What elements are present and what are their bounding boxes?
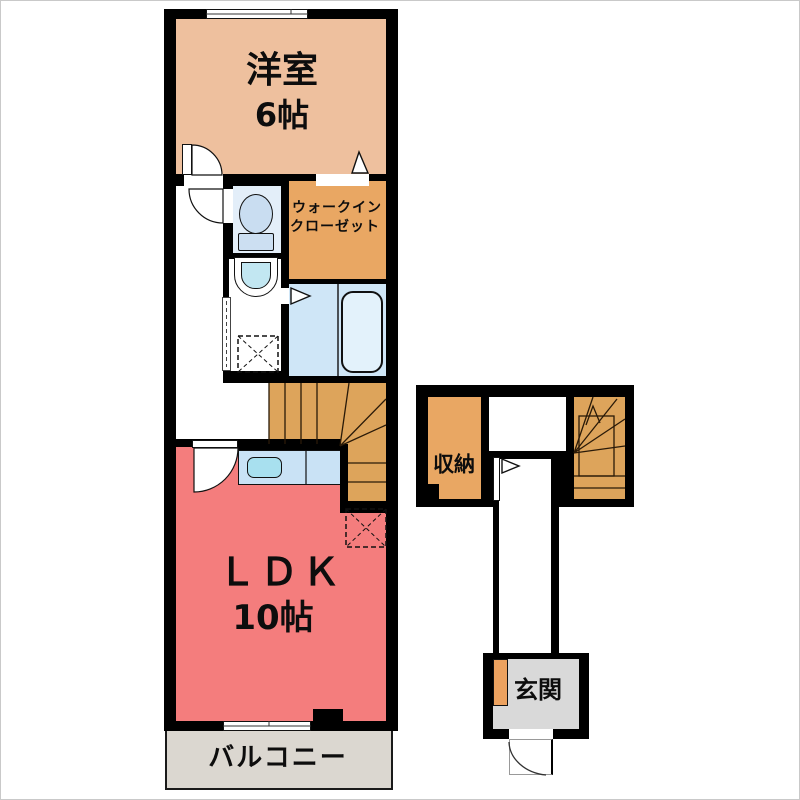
bathroom-door-opening [281,288,289,304]
bedroom-window [206,9,308,19]
bathtub [341,291,383,373]
ldk-door-leaf [192,440,238,448]
ldk-size-label: 10帖 [232,601,313,635]
stairs-lower-flight [348,444,386,501]
balcony-label: バルコニー [208,745,347,771]
hall-door-leaf [493,457,500,501]
toilet-tank [238,233,274,251]
corridor-right-wall [551,507,559,659]
ldk-pillar [313,709,343,723]
floor-plan: 洋室 6帖 ウォークイン クローゼット ＬＤＫ 10帖 バルコニー 収納 玄関 [0,0,800,800]
bedroom-size-label: 6帖 [255,99,309,131]
bedroom-label: 洋室 [246,53,318,89]
bedroom-door-opening [184,174,223,186]
ldk-label: ＬＤＫ [218,553,344,591]
hallway-lower [223,383,269,439]
ldk-balcony-window [223,721,311,731]
stairs-upper-flight [269,383,386,444]
storage-notch [428,484,439,499]
toilet-door-opening [223,189,233,223]
corridor [499,459,551,659]
washroom-sliding-door [222,297,231,371]
stairs-kitchen-wall [340,444,348,501]
entry-door-opening [509,729,553,739]
hallway-upper [176,186,223,439]
closet-opening [316,174,369,186]
kitchen-wall [238,439,341,450]
entrance-label: 玄関 [514,678,562,702]
walk-in-closet-label-line1: ウォークイン [292,201,382,215]
bedroom-door-leaf [182,144,192,175]
entry-door-leaf [509,739,553,775]
storage-label: 収納 [433,455,475,476]
kitchen-sink [247,457,282,478]
stairs-right-building [574,397,625,499]
toilet-bowl [239,194,273,234]
plan-line-overlay [1,1,800,800]
walk-in-closet-label-line2: クローゼット [290,220,380,234]
washbasin-bowl [241,262,271,289]
upper-hall [489,397,566,451]
shoe-cabinet [493,659,508,706]
stairs-bottom-wall [340,501,398,513]
